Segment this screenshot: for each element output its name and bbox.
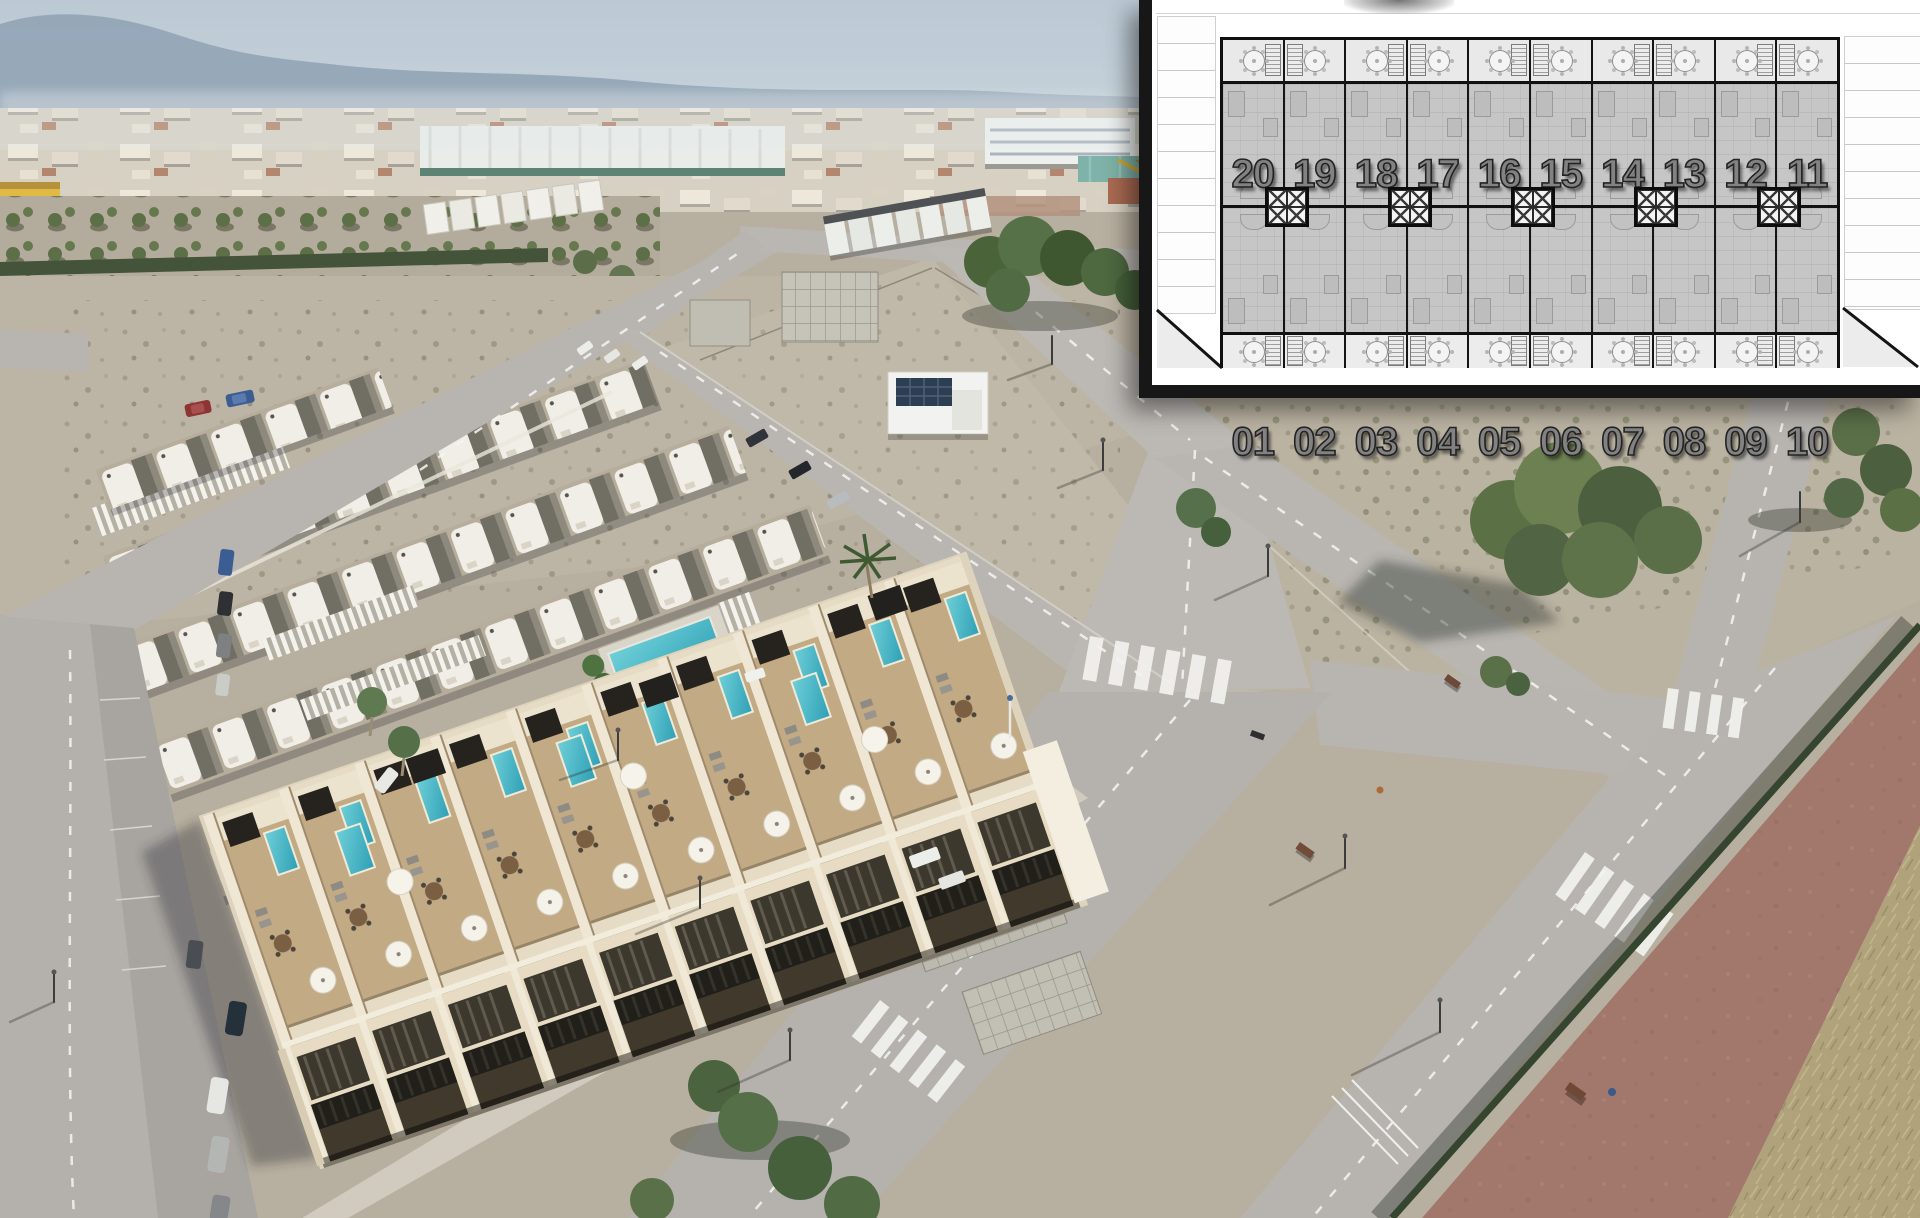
- stairs-icon: [1265, 336, 1281, 366]
- round-table-icon: [1304, 50, 1326, 72]
- stairs-icon: [1656, 44, 1672, 76]
- round-table-icon: [1551, 341, 1573, 363]
- stairs-icon: [1388, 336, 1404, 366]
- unit-number: 08: [1654, 419, 1714, 465]
- stairs-icon: [1410, 44, 1426, 76]
- solar-roof-building: [888, 372, 988, 440]
- round-table-icon: [1612, 341, 1634, 363]
- round-table-icon: [1428, 341, 1450, 363]
- round-table-icon: [1366, 50, 1388, 72]
- stairs-icon: [1779, 44, 1795, 76]
- stairs-icon: [1511, 44, 1527, 76]
- stairs-icon: [1533, 44, 1549, 76]
- stairs-icon: [1634, 44, 1650, 76]
- stairs-icon: [1634, 336, 1650, 366]
- building-floor-plan: 20 01 19 02 18 03 17 04: [1220, 37, 1840, 368]
- unit-number: 10: [1777, 419, 1837, 465]
- round-table-icon: [1736, 50, 1758, 72]
- round-table-icon: [1797, 341, 1819, 363]
- stairs-icon: [1511, 336, 1527, 366]
- site-plan-overlay: 20 01 19 02 18 03 17 04: [1139, 0, 1920, 398]
- stairs-icon: [1656, 336, 1672, 366]
- stairs-icon: [1265, 44, 1281, 76]
- unit-number: 05: [1469, 419, 1529, 465]
- stairs-icon: [1410, 336, 1426, 366]
- elevator-shaft-icon: [1511, 187, 1555, 227]
- stairs-icon: [1287, 336, 1303, 366]
- round-table-icon: [1489, 50, 1511, 72]
- aerial-photo-composite: 20 01 19 02 18 03 17 04: [0, 0, 1920, 1218]
- elevator-shaft-icon: [1265, 187, 1309, 227]
- round-table-icon: [1366, 341, 1388, 363]
- pedestrian: [1608, 1088, 1616, 1096]
- elevator-shaft-icon: [1634, 187, 1678, 227]
- elevator-shaft-icon: [1757, 187, 1801, 227]
- round-table-icon: [1243, 341, 1265, 363]
- unit-number: 03: [1346, 419, 1406, 465]
- stairs-icon: [1779, 336, 1795, 366]
- round-table-icon: [1736, 341, 1758, 363]
- stairs-icon: [1533, 336, 1549, 366]
- round-table-icon: [1674, 341, 1696, 363]
- unit-number: 06: [1531, 419, 1591, 465]
- elevator-shaft-icon: [1388, 187, 1432, 227]
- unit-number: 01: [1223, 419, 1283, 465]
- stairs-icon: [1388, 44, 1404, 76]
- round-table-icon: [1428, 50, 1450, 72]
- round-table-icon: [1612, 50, 1634, 72]
- round-table-icon: [1551, 50, 1573, 72]
- stairs-icon: [1757, 336, 1773, 366]
- pedestrian: [1377, 787, 1384, 794]
- round-table-icon: [1797, 50, 1819, 72]
- unit-number: 02: [1285, 419, 1345, 465]
- round-table-icon: [1304, 341, 1326, 363]
- unit-number: 04: [1408, 419, 1468, 465]
- stairs-icon: [1757, 44, 1773, 76]
- unit-number: 09: [1716, 419, 1776, 465]
- round-table-icon: [1489, 341, 1511, 363]
- round-table-icon: [1243, 50, 1265, 72]
- stairs-icon: [1287, 44, 1303, 76]
- unit-number: 07: [1593, 419, 1653, 465]
- round-table-icon: [1674, 50, 1696, 72]
